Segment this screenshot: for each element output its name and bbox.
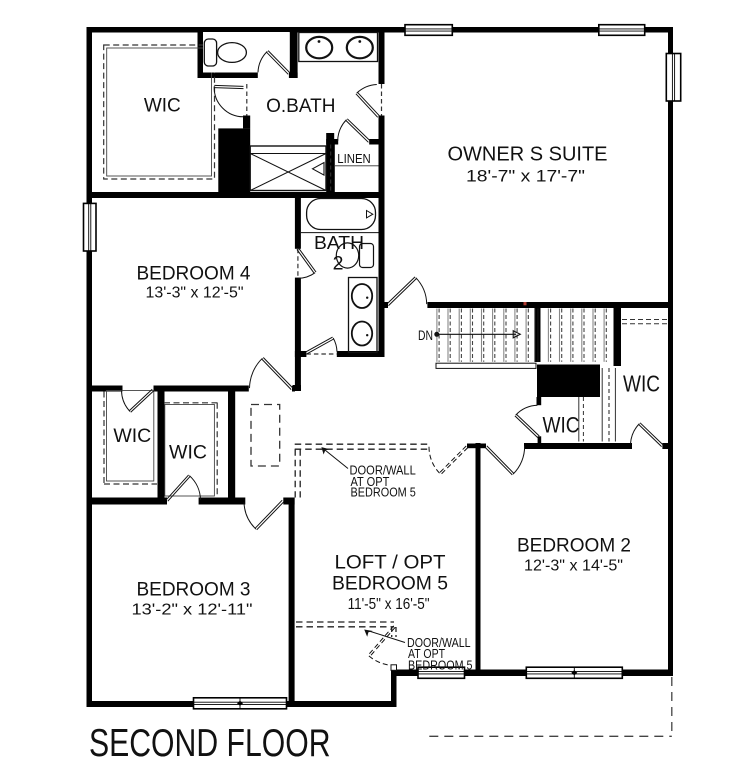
svg-text:11'-5" x 16'-5": 11'-5" x 16'-5" [348,596,430,613]
svg-text:18'-7" x 17'-7": 18'-7" x 17'-7" [466,168,585,186]
svg-text:BEDROOM 5: BEDROOM 5 [351,485,416,500]
svg-text:BEDROOM 5: BEDROOM 5 [332,574,448,595]
svg-text:13'-2" x 12'-11": 13'-2" x 12'-11" [132,602,253,619]
svg-text:LINEN: LINEN [337,152,371,166]
svg-text:BEDROOM 3: BEDROOM 3 [136,579,250,600]
svg-text:O.BATH: O.BATH [266,96,335,117]
svg-text:BEDROOM 2: BEDROOM 2 [517,536,631,557]
svg-text:SECOND FLOOR: SECOND FLOOR [89,722,331,765]
svg-text:2: 2 [333,253,344,275]
svg-text:13'-3" x 12'-5": 13'-3" x 12'-5" [146,285,244,302]
svg-text:BEDROOM 4: BEDROOM 4 [136,264,250,285]
svg-text:DN: DN [418,328,433,343]
svg-text:BATH: BATH [314,232,364,253]
svg-text:WIC: WIC [543,413,580,438]
svg-text:WIC: WIC [623,371,660,397]
svg-text:WIC: WIC [169,442,207,464]
svg-text:WIC: WIC [113,425,151,447]
svg-text:LOFT / OPT: LOFT / OPT [335,552,446,573]
svg-text:WIC: WIC [144,96,181,117]
svg-text:BEDROOM 5: BEDROOM 5 [408,657,473,672]
svg-text:OWNER S SUITE: OWNER S SUITE [447,144,607,166]
svg-text:12'-3" x 14'-5": 12'-3" x 14'-5" [524,558,623,575]
